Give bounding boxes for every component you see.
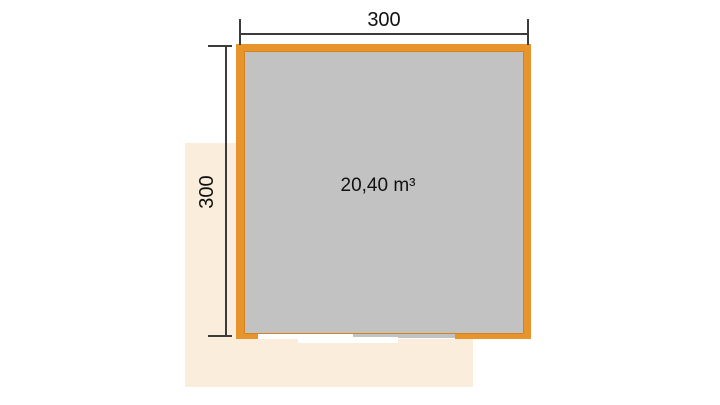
width-dimension-label: 300	[239, 9, 529, 31]
depth-dimension-label: 300	[196, 152, 218, 232]
door-threshold	[298, 337, 398, 343]
depth-dimension-line	[225, 46, 227, 337]
depth-dimension-cap-bottom	[208, 335, 232, 337]
volume-label: 20,40 m³	[278, 174, 478, 198]
width-dimension-line	[239, 33, 529, 35]
floor-plan-canvas: 300 300 20,40 m³	[0, 0, 720, 405]
depth-dimension-cap-top	[208, 45, 232, 47]
